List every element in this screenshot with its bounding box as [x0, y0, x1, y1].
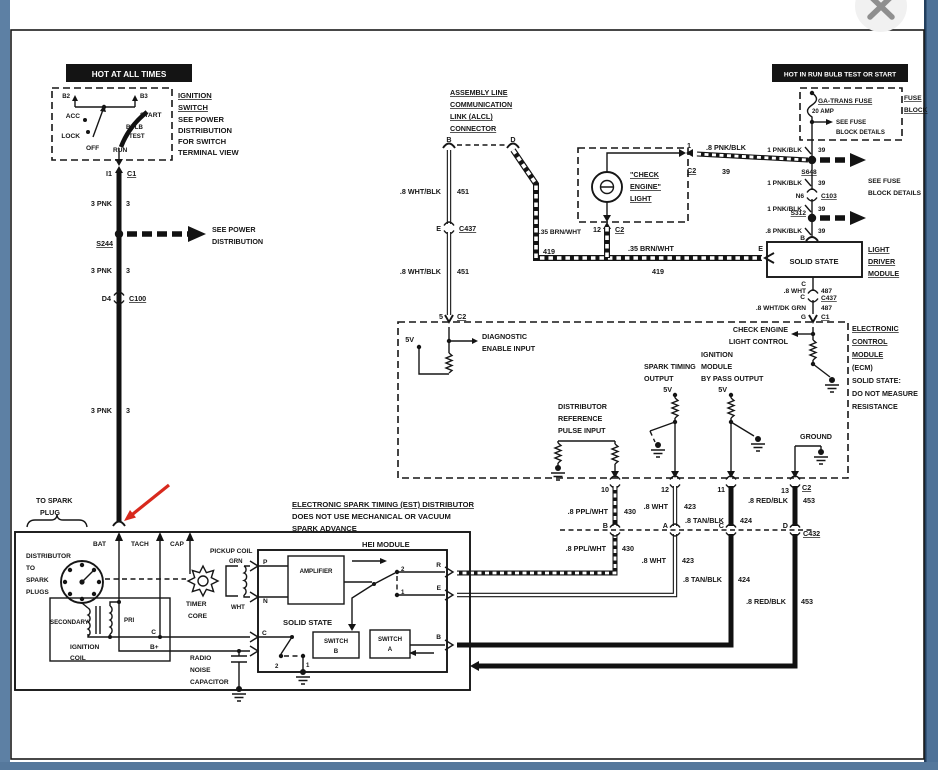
lbl-see-power: SEE POWER	[178, 115, 225, 124]
lbl-5: 5	[439, 312, 443, 321]
lbl-ecm-2: CONTROL	[852, 337, 888, 346]
lbl-to-spark: TO SPARK	[36, 496, 73, 505]
lbl-hei-c: C	[262, 630, 267, 637]
lbl-i1: I1	[106, 169, 112, 178]
lbl-c2-b: C2	[615, 225, 624, 234]
lbl-sw-1: 1	[306, 662, 310, 669]
lbl-3-1: 3	[126, 199, 130, 208]
lbl-engine: ENGINE"	[630, 182, 661, 191]
lbl-487-2: 487	[821, 305, 832, 312]
lbl-ignition-coil-2: COIL	[70, 655, 86, 662]
lbl-b2: B2	[62, 93, 70, 100]
lbl-alcl-2: COMMUNICATION	[450, 100, 512, 109]
lbl-ldm-e: E	[758, 244, 763, 253]
ignition-switch-box	[52, 88, 172, 160]
lbl-487-1: 487	[821, 288, 832, 295]
lbl-3pnk-1: 3 PNK	[91, 199, 113, 208]
resistor-clc-icon	[810, 340, 816, 360]
lbl-ref-2: REFERENCE	[558, 414, 603, 423]
lbl-c1: C1	[127, 169, 136, 178]
lbl-cel-1: 1	[687, 141, 691, 150]
bat-connector-icon	[113, 522, 125, 527]
lbl-lock: LOCK	[61, 133, 80, 140]
splice-s312	[808, 214, 816, 222]
lbl-ldm-solid-state: SOLID STATE	[789, 257, 838, 266]
lbl-ref-1: DISTRIBUTOR	[558, 402, 608, 411]
pickup-winding-icon	[244, 566, 247, 595]
lbl-ga-trans-fuse: GA-TRANS FUSE	[818, 98, 873, 105]
ignition-output-connector-icon	[115, 159, 123, 173]
lbl-enable-input: ENABLE INPUT	[482, 344, 536, 353]
lbl-fuse: FUSE	[904, 95, 922, 102]
lbl-b-term: B	[800, 235, 805, 242]
close-button[interactable]	[855, 0, 907, 32]
lbl-pin-10: 10	[601, 485, 609, 494]
lbl-see-fuse-1: SEE FUSE	[836, 119, 866, 126]
lbl-block-details-1: BLOCK DETAILS	[836, 129, 885, 136]
lbl-off: OFF	[86, 145, 99, 152]
lbl-test: TEST	[129, 133, 145, 140]
lbl-est-h1: ELECTRONIC SPARK TIMING (EST) DISTRIBUTO…	[292, 500, 474, 509]
lbl-3pnk-3: 3 PNK	[91, 406, 113, 415]
lbl-c437: C437	[459, 224, 476, 233]
lbl-ecm-4: (ECM)	[852, 363, 873, 372]
lbl-switch: SWITCH	[178, 103, 208, 112]
lbl-c2-bottom: C2	[802, 483, 811, 492]
lbl-wht: WHT	[231, 604, 245, 611]
lbl-bplus: B+	[150, 644, 159, 651]
lbl-3pnk-2: 3 PNK	[91, 266, 113, 275]
resistor-ref-a-icon	[555, 443, 561, 463]
ground-capacitor-icon	[232, 686, 246, 701]
lbl-451-2: 451	[457, 267, 469, 276]
lbl-1pnkblk-1: 1 PNK/BLK	[767, 147, 802, 154]
lbl-ecm-1: ELECTRONIC	[852, 324, 899, 333]
lbl-ldm-light: LIGHT	[868, 245, 890, 254]
coil-c-wire	[88, 634, 250, 637]
lbl-ecm-7: RESISTANCE	[852, 402, 898, 411]
lbl-dist-1: DISTRIBUTOR	[26, 553, 71, 560]
lbl-451-1: 451	[457, 187, 469, 196]
lbl-whtdkgrn: .8 WHT/DK GRN	[756, 305, 806, 312]
lbl-amplifier: AMPLIFIER	[300, 568, 333, 575]
lbl-5v-st: 5V	[663, 385, 672, 394]
lbl-5v-diag: 5V	[405, 335, 414, 344]
lbl-ignition: IGNITION	[178, 91, 212, 100]
lbl-39-1: 39	[818, 147, 826, 154]
lbl-st-1: SPARK TIMING	[644, 362, 696, 371]
lbl-capacitor: CAPACITOR	[190, 679, 229, 686]
resistor-diag-icon	[446, 353, 452, 373]
resistor-bp-icon	[728, 398, 734, 418]
lbl-bp-1: IGNITION	[701, 350, 733, 359]
lbl-424b-n: 424	[738, 575, 750, 584]
lbl-39-4: 39	[818, 228, 826, 235]
lbl-tach: TACH	[131, 541, 149, 548]
lbl-423a-n: 423	[684, 502, 696, 511]
hei-c-arrow-icon	[250, 632, 258, 642]
border-right	[926, 0, 938, 770]
lbl-p: P	[263, 559, 268, 566]
lbl-ignition-coil-1: IGNITION	[70, 644, 100, 651]
lbl-block-details-2: BLOCK DETAILS	[868, 190, 922, 197]
lbl-1pnkblk-2: 1 PNK/BLK	[767, 180, 802, 187]
lbl-alcl-4: CONNECTOR	[450, 124, 497, 133]
lbl-430b: .8 PPL/WHT	[566, 544, 607, 553]
lbl-r: R	[436, 562, 441, 569]
lbl-grn: GRN	[229, 558, 243, 565]
lbl-39-3: 39	[818, 206, 826, 213]
lbl-39: 39	[722, 167, 730, 176]
lbl-cel-control-1: CHECK ENGINE	[733, 325, 788, 334]
lbl-diagnostic: DIAGNOSTIC	[482, 332, 527, 341]
lbl-terminal-view: TERMINAL VIEW	[178, 148, 239, 157]
lbl-radio: RADIO	[190, 655, 211, 662]
lbl-c103: C103	[821, 193, 837, 200]
capacitor-icon	[231, 651, 247, 688]
lbl-alcl-1: ASSEMBLY LINE	[450, 88, 508, 97]
lbl-bulb: BULB	[126, 124, 144, 131]
ecm-g-entry-arrow-icon	[809, 315, 817, 322]
lbl-est-h2: DOES NOT USE MECHANICAL OR VACUUM	[292, 512, 451, 521]
lbl-39-2: 39	[818, 180, 826, 187]
lbl-hei-module: HEI MODULE	[362, 540, 410, 549]
lbl-whtblk-1: .8 WHT/BLK	[400, 187, 442, 196]
lbl-sw-2: 2	[275, 663, 279, 670]
lbl-pri: PRI	[124, 617, 134, 624]
brace-icon	[27, 514, 87, 527]
lbl-hot-at-all-times: HOT AT ALL TIMES	[92, 70, 167, 79]
lbl-light: LIGHT	[630, 194, 652, 203]
lbl-c432-c: C	[719, 521, 724, 530]
lbl-pickup-coil: PICKUP COIL	[210, 548, 252, 555]
lbl-453a: .8 RED/BLK	[748, 496, 789, 505]
lbl-brnwht-a: .35 BRN/WHT	[539, 229, 581, 236]
lbl-run: RUN	[113, 147, 128, 154]
lbl-s312: S312	[791, 210, 807, 217]
lbl-dist-3: SPARK	[26, 577, 49, 584]
wiring-diagram-viewer: HOT AT ALL TIMES B2 B3 ACC LOCK OFF STAR…	[0, 0, 938, 770]
lbl-acc: ACC	[66, 113, 81, 120]
lbl-ground: GROUND	[800, 432, 832, 441]
fuse-block-circuit: HOT IN RUN BULB TEST OR START GA-TRANS F…	[765, 64, 927, 242]
hei-n-arrow-icon	[250, 592, 258, 602]
lbl-cel-control-2: LIGHT CONTROL	[729, 337, 789, 346]
lbl-see-power-2: SEE POWER	[212, 225, 256, 234]
fuse-icon	[808, 93, 817, 140]
lbl-s244: S244	[96, 239, 113, 248]
diagram-frame	[11, 30, 924, 759]
lbl-dist-2: TO	[26, 565, 35, 572]
amplifier-box	[288, 556, 344, 604]
lbl-secondary: SECONDARY	[50, 619, 89, 626]
resistor-st-icon	[672, 398, 678, 418]
lbl-noise: NOISE	[190, 667, 211, 674]
lbl-ecm-5: SOLID STATE:	[852, 376, 901, 385]
alcl-connector: ASSEMBLY LINE COMMUNICATION LINK (ALCL) …	[400, 88, 762, 322]
lbl-pin-12: 12	[661, 485, 669, 494]
lbl-b3: B3	[140, 93, 148, 100]
distributor-box	[15, 532, 470, 690]
lbl-5v-bp: 5V	[718, 385, 727, 394]
ground-bp-icon	[751, 436, 765, 451]
lbl-c432: C432	[803, 529, 820, 538]
lbl-check: "CHECK	[630, 170, 660, 179]
ecm: ELECTRONIC CONTROL MODULE (ECM) SOLID ST…	[398, 322, 918, 495]
lbl-bp-3: BY PASS OUTPUT	[701, 374, 764, 383]
lbl-423a: .8 WHT	[644, 502, 669, 511]
lbl-3-3: 3	[126, 406, 130, 415]
lbl-c2-ecm: C2	[457, 312, 466, 321]
lbl-ecm-6: DO NOT MEASURE	[852, 389, 918, 398]
splice-s244	[115, 230, 123, 238]
lbl-s648: S648	[801, 169, 817, 176]
lbl-419-b: 419	[652, 267, 664, 276]
switch-a-box	[370, 630, 410, 658]
lbl-c437-2: C437	[821, 295, 837, 302]
lbl-bat: BAT	[93, 541, 106, 548]
lbl-c432-b: B	[603, 521, 608, 530]
lbl-distribution-2: DISTRIBUTION	[212, 237, 263, 246]
lbl-430a: .8 PPL/WHT	[568, 507, 609, 516]
border-left	[0, 0, 10, 770]
lbl-e-c437: E	[436, 224, 441, 233]
lbl-switch-b-1: SWITCH	[324, 638, 348, 645]
hei-bplus-arrow-icon	[250, 646, 258, 656]
lbl-coil-c: C	[151, 629, 156, 636]
splice-s648	[808, 156, 816, 164]
lbl-ldm-c-top: C	[801, 281, 806, 288]
lbl-see-fuse-2: SEE FUSE	[868, 178, 901, 185]
cel-terminal-1-icon	[679, 149, 693, 157]
lbl-timer: TIMER	[186, 601, 207, 608]
timer-core-icon	[188, 566, 218, 596]
lbl-switch-b-2: B	[334, 648, 339, 655]
wiring-diagram: HOT AT ALL TIMES B2 B3 ACC LOCK OFF STAR…	[0, 0, 938, 770]
lbl-pnkblk: .8 PNK/BLK	[706, 143, 747, 152]
alcl-terminal-icons	[443, 144, 519, 149]
light-driver-module: SOLID STATE LIGHT DRIVER MODULE E C .8 W…	[756, 242, 900, 322]
lbl-core: CORE	[188, 613, 208, 620]
lbl-8pnkblk: .8 PNK/BLK	[765, 228, 802, 235]
ignition-switch-circuit: HOT AT ALL TIMES B2 B3 ACC LOCK OFF STAR…	[52, 64, 263, 526]
lbl-start: START	[140, 112, 162, 119]
wire-430-pplwht	[457, 534, 615, 573]
lbl-pin-13: 13	[781, 486, 789, 495]
distributor-cap-icon	[61, 561, 103, 603]
lbl-for-switch: FOR SWITCH	[178, 137, 226, 146]
lbl-ref-3: PULSE INPUT	[558, 426, 606, 435]
lbl-distribution: DISTRIBUTION	[178, 126, 232, 135]
lbl-cel-c2: C2	[687, 166, 696, 175]
lbl-423b-n: 423	[682, 556, 694, 565]
lbl-hei-b: B	[436, 634, 441, 641]
lbl-ldm-module: MODULE	[868, 269, 899, 278]
lbl-whtblk-2: .8 WHT/BLK	[400, 267, 442, 276]
lbl-hot-in-run: HOT IN RUN BULB TEST OR START	[784, 72, 896, 79]
lbl-dist-4: PLUGS	[26, 589, 49, 596]
lbl-brnwht-b: .35 BRN/WHT	[628, 244, 675, 253]
lbl-430b-n: 430	[622, 544, 634, 553]
hei-p-arrow-icon	[250, 561, 258, 571]
lbl-3-2: 3	[126, 266, 130, 275]
ground-clc-icon	[825, 377, 839, 392]
lbl-cap: CAP	[170, 541, 185, 548]
lbl-ecm-3: MODULE	[852, 350, 883, 359]
lbl-c100: C100	[129, 294, 146, 303]
lbl-424a-n: 424	[740, 516, 752, 525]
lbl-bp-2: MODULE	[701, 362, 732, 371]
ground-ecm-icon	[814, 449, 828, 464]
ecm-entry-arrow-icon	[445, 315, 453, 322]
lbl-hei-solid-state: SOLID STATE	[283, 618, 332, 627]
primary-winding-icon	[110, 606, 112, 634]
lbl-switch-a-2: A	[388, 646, 393, 653]
lbl-pin-11: 11	[717, 485, 725, 494]
ldm-b-connector-icon	[806, 237, 818, 241]
lbl-424b: .8 TAN/BLK	[683, 575, 723, 584]
lbl-block: BLOCK	[904, 107, 928, 114]
lbl-430a-n: 430	[624, 507, 636, 516]
lbl-alcl-3: LINK (ALCL)	[450, 112, 493, 121]
lbl-c432-a: A	[663, 521, 668, 530]
lbl-ldm-c-mid: C	[800, 294, 805, 301]
lbl-c432-d: D	[783, 521, 788, 530]
ground-st-icon	[651, 442, 665, 457]
lbl-419-a: 419	[543, 247, 555, 256]
red-callout-arrow	[124, 485, 169, 521]
lbl-20amp: 20 AMP	[812, 108, 834, 115]
border-bottom	[0, 762, 938, 770]
lbl-453b-n: 453	[801, 597, 813, 606]
resistor-ref-b-icon	[612, 444, 618, 464]
lbl-n6: N6	[796, 193, 805, 200]
lbl-g: G	[801, 314, 806, 321]
lbl-423b: .8 WHT	[642, 556, 667, 565]
lbl-switch-a-1: SWITCH	[378, 636, 402, 643]
ecm-to-hei-wires: .8 PPL/WHT 430 .8 PPL/WHT 430 .8 WHT 423…	[457, 486, 820, 671]
lbl-d4: D4	[102, 294, 111, 303]
lbl-n: N	[263, 598, 268, 605]
lbl-12: 12	[593, 225, 601, 234]
est-distributor: ELECTRONIC SPARK TIMING (EST) DISTRIBUTO…	[15, 496, 474, 701]
lbl-e: E	[437, 585, 442, 592]
lbl-st-2: OUTPUT	[644, 374, 674, 383]
lbl-c1-ecm: C1	[821, 314, 830, 321]
lbl-453b: .8 RED/BLK	[746, 597, 787, 606]
lbl-453a-n: 453	[803, 496, 815, 505]
lbl-ldm-driver: DRIVER	[868, 257, 896, 266]
